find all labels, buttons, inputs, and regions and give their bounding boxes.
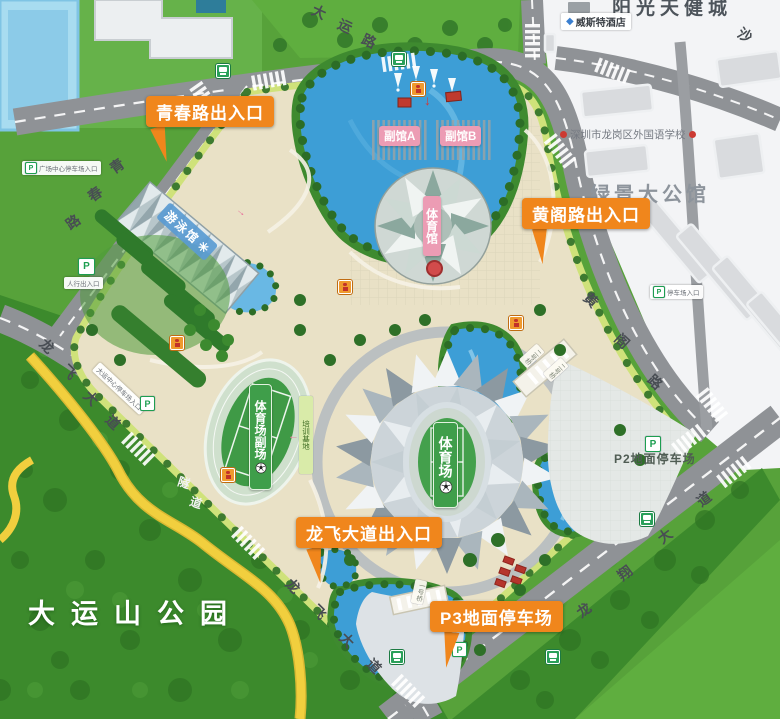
toilet-icon <box>170 336 184 350</box>
plaza-center-parking-sign: P 广场中心停车场入口 <box>22 161 101 175</box>
red-gate <box>398 98 411 107</box>
p3-parking-callout[interactable]: P3地面停车场 <box>430 601 563 632</box>
school-name: 深圳市龙岗区外国语学校 <box>570 127 686 142</box>
p2-parking-label: P2地面停车场 <box>614 450 696 467</box>
hall-a-label: 副馆A <box>379 126 420 146</box>
toilet-icon <box>338 280 352 294</box>
pink-arrow-icon: ← <box>288 430 299 442</box>
down-arrow-icon: ↓ <box>424 92 431 108</box>
toilet-icon <box>221 468 235 482</box>
bus-stop-icon <box>390 650 404 664</box>
school-label: 深圳市龙岗区外国语学校 <box>560 127 696 142</box>
bus-stop-icon <box>392 52 406 66</box>
p-letter: P <box>650 439 657 450</box>
p-letter: P <box>29 165 34 172</box>
dayun-center-parking-icon: P <box>140 396 155 411</box>
longfei-entrance-callout[interactable]: 龙飞大道出入口 <box>296 517 442 548</box>
hotel-icon: ◆ <box>566 16 574 27</box>
bus-stop-icon <box>546 650 560 664</box>
soccer-ball-icon <box>439 480 453 494</box>
parking-icon: P <box>25 162 37 174</box>
huangge-entrance-callout[interactable]: 黄阁路出入口 <box>522 198 650 229</box>
label-chip <box>568 2 590 13</box>
p-letter: P <box>83 261 90 272</box>
school-dot-icon <box>560 131 567 138</box>
p-letter: P <box>456 645 462 655</box>
gymnasium-label: 体育馆 <box>423 196 441 256</box>
hotel-name: 威斯特酒店 <box>576 14 626 29</box>
east-parking-sign: P 停车场入口 <box>650 285 703 299</box>
stadium-label: 体育场 <box>433 422 458 508</box>
snowflake-icon <box>197 240 211 254</box>
stadium-name: 体育场 <box>436 436 456 478</box>
training-base-tag: 培训基地 <box>299 396 313 474</box>
qingchun-entrance-callout[interactable]: 青春路出入口 <box>146 96 274 127</box>
bus-stop-icon <box>640 512 654 526</box>
toilet-icon <box>411 82 425 96</box>
east-sign-text: 停车场入口 <box>667 287 700 297</box>
pedestrian-entrance-sign: 人行出入口 <box>64 277 103 289</box>
park-name: 大运山公园 <box>28 592 243 631</box>
toilet-icon <box>509 316 523 330</box>
p2-parking-icon[interactable]: P <box>645 436 661 452</box>
plaza-center-sign-text: 广场中心停车场入口 <box>39 163 98 173</box>
school-dot-icon <box>689 131 696 138</box>
bus-stop-icon <box>216 64 230 78</box>
gymnasium-marker-icon <box>426 260 443 277</box>
parking-icon: P <box>653 286 665 298</box>
hall-b-label: 副馆B <box>440 126 481 146</box>
park-map: 阳光天健城 ◆ 威斯特酒店 深圳市龙岗区外国语学校 绿景大公馆 大运山公园 隧 … <box>0 0 780 719</box>
stadium-annex-name: 体育场副场 <box>252 400 269 460</box>
pedestrian-parking-icon: P <box>78 258 95 275</box>
red-gate <box>446 91 462 102</box>
stadium-annex-label: 体育场副场 <box>249 384 272 490</box>
soccer-ball-icon <box>255 462 267 474</box>
hotel-sign: ◆ 威斯特酒店 <box>561 13 631 30</box>
p-letter: P <box>657 289 662 296</box>
p-letter: P <box>144 399 150 409</box>
